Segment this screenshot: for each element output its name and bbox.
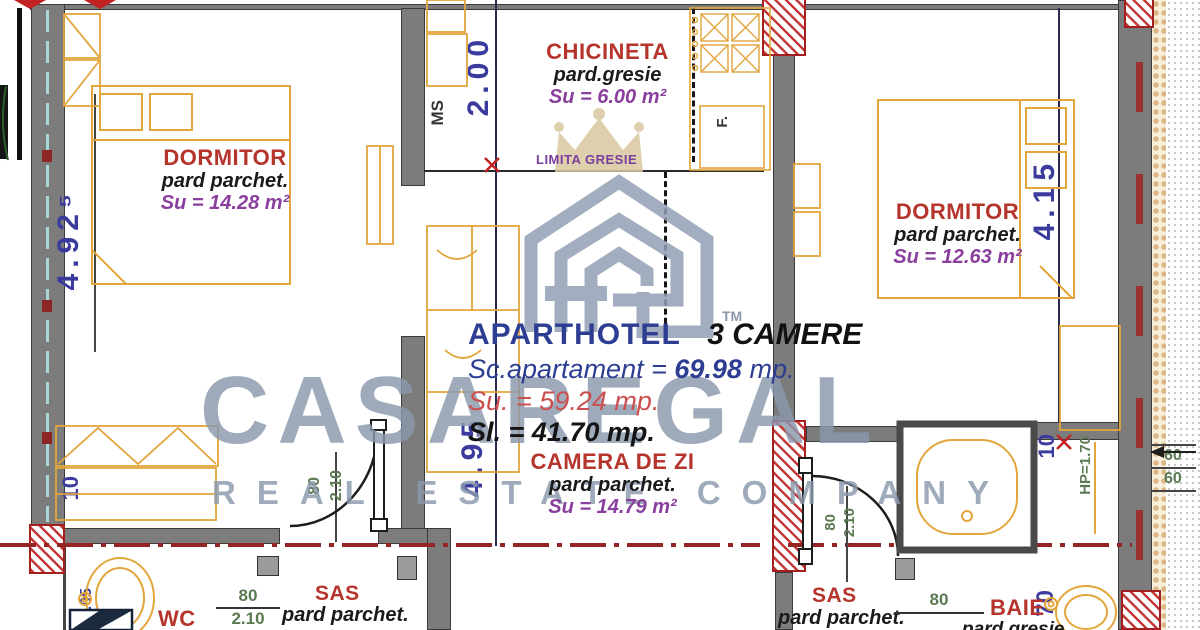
room-wc-title: WC [158, 606, 196, 630]
dim-wc-door-width: 80 [216, 586, 280, 609]
room-area: Su = 14.79 m² [515, 496, 710, 518]
title-block: APARTHOTEL 3 CAMERE [468, 318, 862, 352]
house-logo-bar [545, 286, 607, 301]
section-marker-icon [70, 610, 132, 630]
room-title: DORMITOR [125, 146, 325, 170]
dresser-left-icon [56, 426, 218, 520]
room-sas-left-floor: pard parchet. [282, 604, 409, 627]
room-floor: pard parchet. [125, 170, 325, 192]
room-floor: pard parchet. [860, 224, 1055, 246]
room-sas-left-title: SAS [315, 582, 360, 606]
room-area: Su = 14.28 m² [125, 192, 325, 214]
room-chicineta: CHICINETA pard.gresie Su = 6.00 m² [515, 40, 700, 108]
room-title: CHICINETA [515, 40, 700, 64]
room-dormitor-right: DORMITOR pard parchet. Su = 12.63 m² [860, 200, 1055, 268]
washing-machine-icon [427, 0, 467, 86]
room-floor: pard parchet. [515, 474, 710, 496]
sc-value: 69.98 [674, 354, 742, 384]
dim-wc-door-height: 2.10 [216, 609, 280, 629]
dim-sas-right-width: 80 [894, 590, 984, 614]
room-sas-right-title: SAS [812, 584, 857, 608]
brand-name: APARTHOTEL [468, 318, 681, 351]
sc-line: Sc.apartament = 69.98 mp. [468, 354, 794, 385]
radiator-icon [367, 146, 393, 244]
exterior-curve [3, 86, 8, 160]
stove-icon [693, 14, 760, 72]
room-dormitor-left: DORMITOR pard parchet. Su = 14.28 m² [125, 146, 325, 214]
room-sas-right-floor: pard parchet. [778, 607, 905, 630]
casa-regal-logo [513, 108, 725, 338]
room-area: Su = 12.63 m² [860, 246, 1055, 268]
floor-plan: CASAREGAL REAL ESTATE COMPANY TM APARTHO… [0, 0, 1200, 630]
room-baie-title: BAIE [990, 595, 1045, 621]
limita-gresie-label: LIMITA GRESIE [536, 152, 637, 167]
dim-sas-right-width-value: 80 [894, 590, 984, 614]
red-top-ticks [14, 0, 116, 9]
room-floor: pard.gresie [515, 64, 700, 86]
house-spiral-icon [531, 182, 707, 332]
room-baie-floor: pard gresie [962, 619, 1064, 630]
dim-wc-door: 80 2.10 [216, 586, 280, 629]
sc-label: Sc.apartament = [468, 354, 674, 384]
window-arrow-icon [1150, 446, 1196, 458]
room-camera-de-zi: CAMERA DE ZI pard parchet. Su = 14.79 m² [515, 450, 710, 518]
unit-type: 3 CAMERE [707, 318, 862, 351]
closet-topleft-icon [64, 14, 100, 106]
sl-line: Sl. = 41.70 mp. [468, 417, 655, 448]
room-title: DORMITOR [860, 200, 1055, 224]
su-line: Su. = 59.24 mp. [468, 386, 659, 417]
room-area: Su = 6.00 m² [515, 86, 700, 108]
sc-unit: mp. [742, 354, 795, 384]
room-title: CAMERA DE ZI [515, 450, 710, 474]
